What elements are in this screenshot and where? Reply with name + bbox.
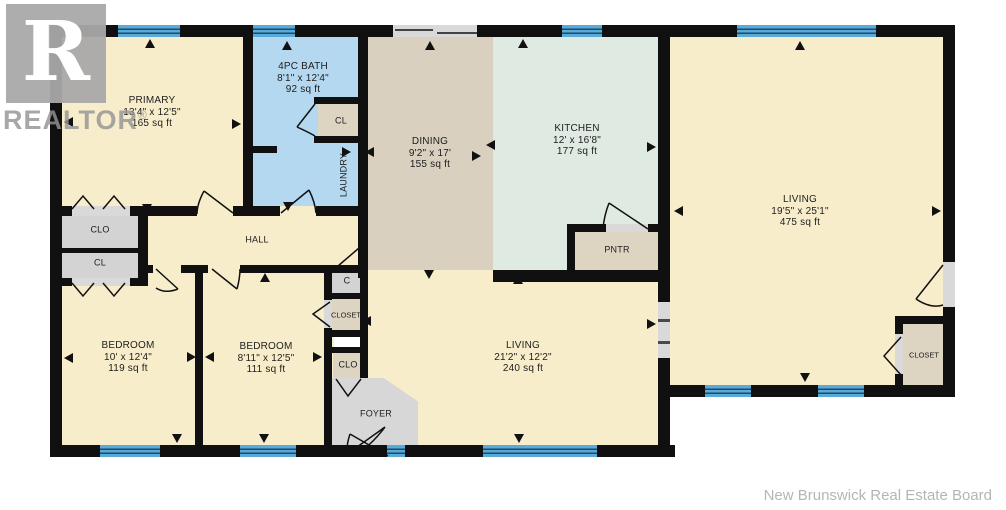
room-label-living-right: LIVING 19'5" x 25'1" 475 sq ft <box>771 194 828 229</box>
wall <box>943 25 955 397</box>
label-closet-center: CLOSET <box>331 309 361 321</box>
patio-door-opening <box>393 25 477 37</box>
door-opening <box>208 265 240 273</box>
wall <box>360 265 368 378</box>
window-tick <box>658 319 670 322</box>
wall <box>56 248 144 253</box>
label-foyer: FOYER <box>360 408 392 420</box>
room-label-dining: DINING 9'2" x 17' 155 sq ft <box>409 136 451 171</box>
door-opening <box>943 262 955 307</box>
room-dims: 10' x 12'4" <box>101 351 154 363</box>
room-dims: 12' x 16'8" <box>553 134 601 146</box>
wall <box>314 136 364 143</box>
room-label-bedroom2: BEDROOM 8'11" x 12'5" 111 sq ft <box>238 341 295 376</box>
room-dims: 8'1" x 12'4" <box>277 72 329 84</box>
door-opening <box>197 206 233 216</box>
window <box>483 445 597 457</box>
room-area: 177 sq ft <box>553 146 601 158</box>
realtor-wordmark-text: REALTOR <box>3 105 138 135</box>
label-closet-right: CLOSET <box>909 349 939 361</box>
room-name: LIVING <box>494 340 551 352</box>
window <box>562 25 602 37</box>
room-area: 240 sq ft <box>494 363 551 375</box>
room-area: 92 sq ft <box>277 84 329 96</box>
room-label-living-center: LIVING 21'2" x 12'2" 240 sq ft <box>494 340 551 375</box>
realtor-logo-letter: R <box>22 11 90 93</box>
wall <box>358 25 368 278</box>
window <box>100 445 160 457</box>
room-dims: 9'2" x 17' <box>409 147 451 159</box>
room-name: 4PC BATH <box>277 61 329 73</box>
label-pantry: PNTR <box>604 244 629 256</box>
room-name: BEDROOM <box>238 341 295 353</box>
window <box>737 25 876 37</box>
wall <box>148 265 368 273</box>
door-opening <box>153 265 181 273</box>
window <box>240 445 296 457</box>
room-dims: 8'11" x 12'5" <box>238 352 295 364</box>
room-label-bath: 4PC BATH 8'1" x 12'4" 92 sq ft <box>277 61 329 96</box>
room-label-bedroom1: BEDROOM 10' x 12'4" 119 sq ft <box>101 340 154 375</box>
registered-mark: ® <box>138 108 148 122</box>
label-clo-left: CLO <box>90 224 109 236</box>
room-dims: 21'2" x 12'2" <box>494 351 551 363</box>
door-opening <box>606 224 648 232</box>
label-laundry: LAUNDRY <box>338 153 350 197</box>
room-area: 475 sq ft <box>771 217 828 229</box>
window <box>818 385 864 397</box>
room-name: DINING <box>409 136 451 148</box>
wall <box>493 270 670 282</box>
door-opening <box>280 206 316 216</box>
window <box>118 25 180 37</box>
label-hall: HALL <box>245 234 268 246</box>
realtor-logo-icon: R <box>6 4 106 103</box>
room-area: 155 sq ft <box>409 159 451 171</box>
label-bath-closet: CL <box>335 115 347 127</box>
room-label-kitchen: KITCHEN 12' x 16'8" 177 sq ft <box>553 123 601 158</box>
window <box>705 385 751 397</box>
wall <box>314 97 364 104</box>
room-name: LIVING <box>771 194 828 206</box>
room-dims: 19'5" x 25'1" <box>771 205 828 217</box>
window-tick <box>658 341 670 344</box>
door-opening <box>72 206 130 216</box>
floor-plan: PRIMARY 13'4" x 12'5" 165 sq ft 4PC BATH… <box>0 0 1006 510</box>
wall <box>243 25 253 215</box>
room-name: KITCHEN <box>553 123 601 135</box>
room-name: BEDROOM <box>101 340 154 352</box>
wall <box>195 265 203 447</box>
wall <box>247 146 277 153</box>
door-opening <box>895 334 903 374</box>
door-opening <box>72 278 130 286</box>
label-cl-left: CL <box>94 257 106 269</box>
label-clo-center: CLO <box>338 359 357 371</box>
realtor-wordmark: REALTOR® <box>3 105 148 136</box>
board-credit: New Brunswick Real Estate Board <box>764 487 992 504</box>
wall <box>658 25 670 457</box>
wall <box>138 206 148 286</box>
wall <box>324 347 368 353</box>
interior-window-opening <box>658 302 670 358</box>
wall <box>324 293 368 299</box>
label-c-closet: C <box>344 275 351 287</box>
room-area: 119 sq ft <box>101 363 154 375</box>
wall <box>567 224 575 276</box>
window <box>387 445 405 457</box>
window <box>253 25 295 37</box>
wall <box>324 330 368 337</box>
room-area: 111 sq ft <box>238 364 295 376</box>
